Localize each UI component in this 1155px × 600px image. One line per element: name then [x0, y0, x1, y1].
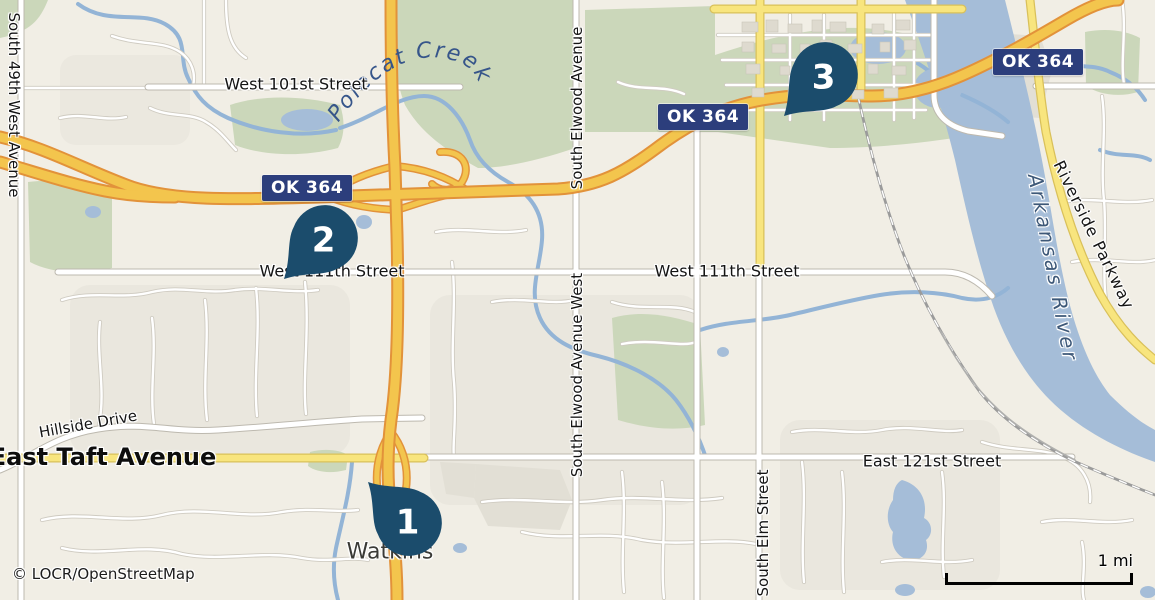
marker-number: 2: [312, 220, 336, 260]
map-marker-1[interactable]: 1: [345, 459, 456, 570]
map-marker-3[interactable]: 3: [761, 28, 872, 139]
marker-number: 3: [812, 57, 836, 97]
map-canvas[interactable]: Polecat Creek West 101st Street West 111…: [0, 0, 1155, 600]
map-marker-2[interactable]: 2: [261, 191, 372, 302]
marker-number: 1: [396, 503, 420, 543]
